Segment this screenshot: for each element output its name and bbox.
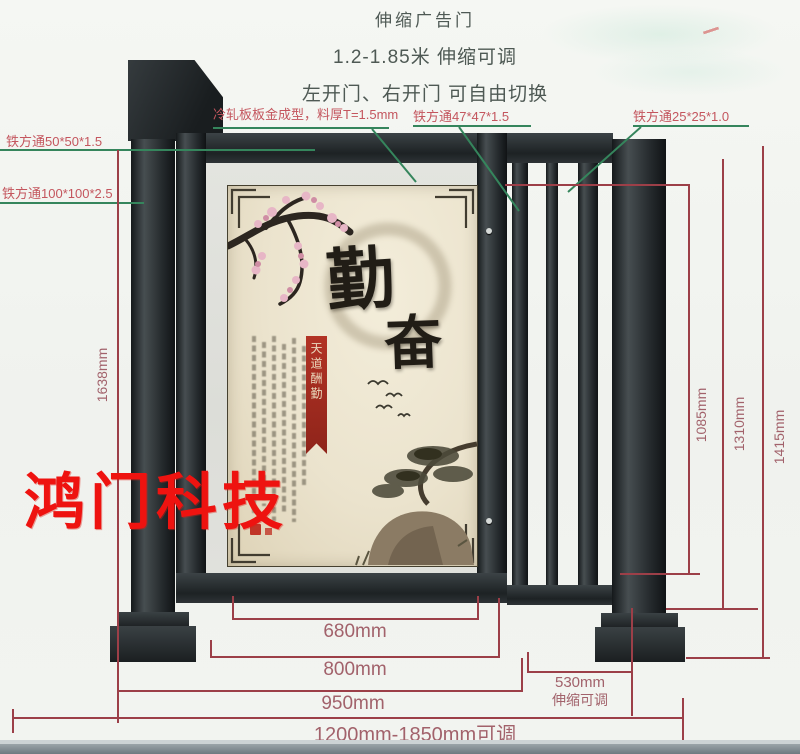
dimension-label-800: 800mm — [252, 659, 458, 681]
tick-680-right — [477, 596, 479, 620]
bottom-band-dark — [0, 744, 800, 754]
tick-800-left — [210, 640, 212, 658]
poster-char-fen: 奋 — [383, 295, 444, 381]
poster-banner: 天道酬勤 — [306, 336, 327, 454]
left-post — [131, 139, 175, 628]
dimension-line-1085 — [688, 184, 690, 575]
callout-tube47: 铁方通47*47*1.5 — [413, 106, 509, 125]
birds-art — [368, 381, 410, 416]
gate-right-stile — [477, 133, 507, 603]
product-subtitle-switch: 左开门、右开门 可自由切换 — [235, 79, 615, 106]
dimension-line-680 — [232, 618, 479, 620]
callout-line-panel — [213, 127, 389, 129]
left-post-base — [110, 626, 196, 662]
hinge-dot-bottom — [486, 518, 492, 524]
bonsai-rock-art — [356, 444, 477, 565]
dimension-ext-1415-bottom — [686, 657, 770, 659]
callout-line-tube100 — [0, 202, 144, 204]
callout-tube50: 铁方通50*50*1.5 — [6, 131, 102, 150]
product-title: 伸缩广告门 — [235, 6, 615, 31]
dimension-label-1415: 1415mm — [771, 377, 787, 497]
background-artifact — [590, 48, 790, 96]
callout-line-tube25 — [633, 125, 749, 127]
dimension-label-1638: 1638mm — [94, 315, 110, 435]
dimension-label-950: 950mm — [250, 693, 456, 715]
product-subtitle-range: 1.2-1.85米 伸缩可调 — [235, 42, 615, 69]
tick-total-left — [12, 709, 14, 733]
dimension-ext-1085-top — [505, 184, 690, 186]
watermark-text: 鸿门科技 — [24, 452, 288, 541]
gate-bottom-rail — [176, 573, 507, 603]
right-post-base — [595, 627, 685, 662]
telescopic-bar-1 — [512, 163, 528, 585]
tick-950-right — [521, 658, 523, 692]
hinge-dot-top — [486, 228, 492, 234]
header-block: 伸缩广告门 1.2-1.85米 伸缩可调 左开门、右开门 可自由切换 — [235, 6, 615, 106]
tick-total-right — [682, 698, 684, 740]
dimension-label-530: 530mm — [528, 674, 632, 691]
dimension-line-1310 — [722, 159, 724, 610]
dimension-line-530 — [527, 671, 633, 673]
dimension-label-1085: 1085mm — [693, 355, 709, 475]
tick-680-left — [232, 596, 234, 620]
telescopic-bottom-rail — [507, 585, 613, 605]
right-post — [612, 139, 666, 631]
gate-top-rail — [176, 133, 613, 163]
dimension-line-950 — [117, 690, 523, 692]
poster-banner-text: 天道酬勤 — [308, 342, 325, 454]
dimension-label-1310: 1310mm — [731, 364, 747, 484]
dimension-ext-1310-bottom — [666, 608, 758, 610]
gate-product-diagram: 勤 奋 天道酬勤 伸缩广告门 1.2-1.85米 伸缩可调 左开门、右开门 可自… — [0, 0, 800, 754]
dimension-line-1415 — [762, 146, 764, 659]
dimension-label-530-note: 伸缩可调 — [528, 690, 632, 710]
tick-800-right — [498, 598, 500, 658]
callout-line-tube47 — [413, 125, 531, 127]
callout-panel: 冷轧板板金成型，料厚T=1.5mm — [213, 104, 398, 123]
dimension-line-1638 — [117, 150, 119, 723]
dimension-label-680: 680mm — [252, 621, 458, 643]
telescopic-bar-3 — [578, 163, 598, 585]
callout-tube25: 铁方通25*25*1.0 — [633, 106, 729, 125]
telescopic-bar-2 — [546, 163, 558, 585]
dimension-ext-1085-bottom — [620, 573, 700, 575]
callout-tube100: 铁方通100*100*2.5 — [2, 183, 113, 202]
dimension-line-800 — [210, 656, 500, 658]
tick-530-left — [527, 652, 529, 673]
motor-housing — [128, 60, 223, 141]
background-artifact — [702, 24, 720, 38]
